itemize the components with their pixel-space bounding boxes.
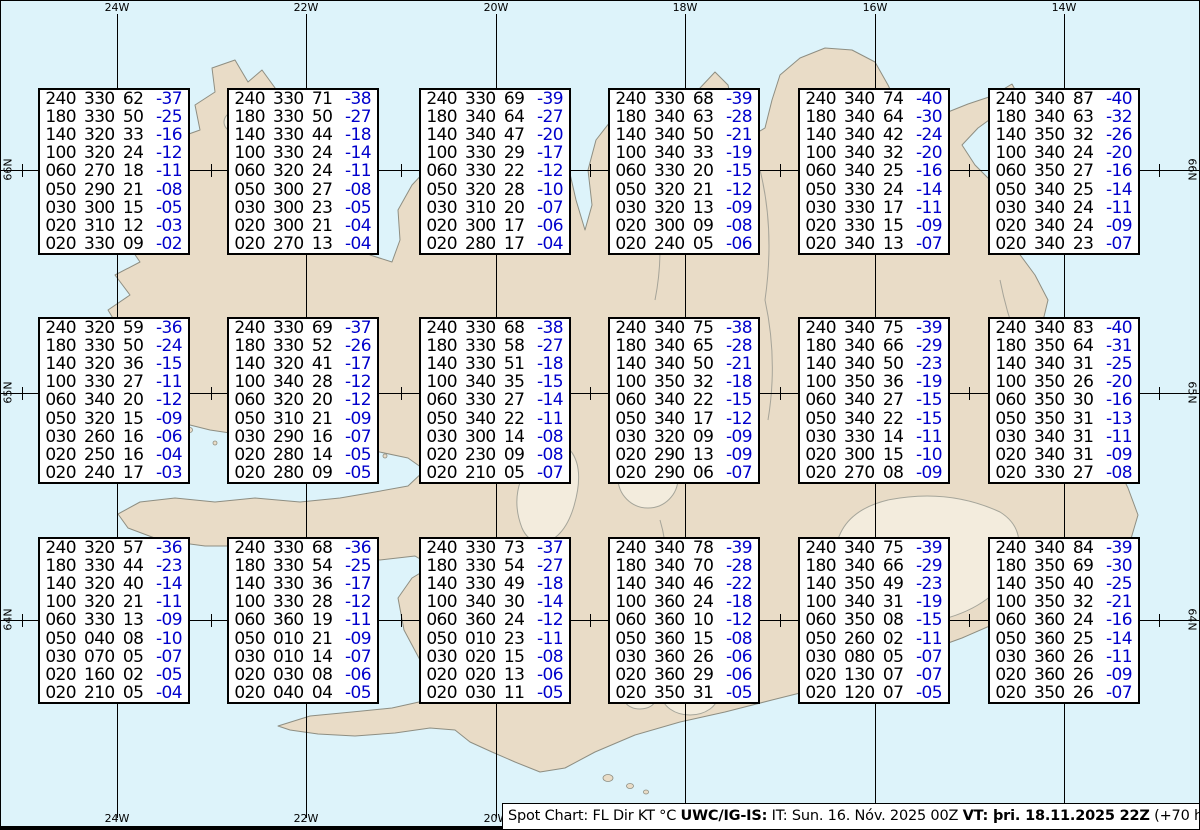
flight-level: 240 <box>426 319 457 337</box>
spot-table-row: 02029006-07 <box>615 464 752 482</box>
wind-direction-deg: 360 <box>653 666 685 684</box>
spot-table-row: 10035032-18 <box>615 373 752 391</box>
spot-table-row: 05030027-08 <box>234 181 371 199</box>
temperature-c: -11 <box>150 162 182 180</box>
spot-table-row: 02029013-09 <box>615 446 752 464</box>
wind-direction-deg: 240 <box>653 235 685 253</box>
wind-speed-kt: 50 <box>691 355 713 373</box>
wind-direction-deg: 300 <box>464 428 496 446</box>
temperature-c: -07 <box>720 464 752 482</box>
temperature-c: -11 <box>339 611 371 629</box>
temperature-c: -19 <box>910 373 942 391</box>
spot-table-row: 02027008-09 <box>805 464 942 482</box>
wind-speed-kt: 02 <box>881 630 903 648</box>
flight-level: 020 <box>995 217 1026 235</box>
wind-speed-kt: 15 <box>121 410 143 428</box>
spot-table-row: 24032059-36 <box>45 319 182 337</box>
flight-level: 030 <box>45 648 76 666</box>
wind-speed-kt: 69 <box>502 90 524 108</box>
wind-speed-kt: 26 <box>691 648 713 666</box>
spot-chart-page: 24W24W22W22W20W20W18W18W16W16W14W14W66N6… <box>0 0 1200 830</box>
wind-direction-deg: 330 <box>272 575 304 593</box>
wind-speed-kt: 05 <box>121 684 143 702</box>
temperature-c: -14 <box>1100 630 1132 648</box>
flight-level: 060 <box>426 391 457 409</box>
spot-table-row: 14034031-25 <box>995 355 1132 373</box>
temperature-c: -11 <box>910 630 942 648</box>
flight-level: 030 <box>995 199 1026 217</box>
wind-direction-deg: 360 <box>1033 630 1065 648</box>
wind-direction-deg: 330 <box>464 391 496 409</box>
wind-direction-deg: 340 <box>653 557 685 575</box>
wind-direction-deg: 030 <box>464 684 496 702</box>
flight-level: 020 <box>45 446 76 464</box>
flight-level: 140 <box>615 355 646 373</box>
wind-direction-deg: 210 <box>83 684 115 702</box>
wind-direction-deg: 340 <box>1033 319 1065 337</box>
wind-direction-deg: 300 <box>272 199 304 217</box>
spot-table-row: 24033068-39 <box>615 90 752 108</box>
spot-table-row: 24034075-39 <box>805 319 942 337</box>
spot-table-row: 02030015-10 <box>805 446 942 464</box>
wind-speed-kt: 64 <box>1071 337 1093 355</box>
temperature-c: -07 <box>1100 235 1132 253</box>
wind-direction-deg: 300 <box>653 217 685 235</box>
temperature-c: -08 <box>720 630 752 648</box>
temperature-c: -08 <box>720 217 752 235</box>
temperature-c: -40 <box>910 90 942 108</box>
wind-speed-kt: 07 <box>881 666 903 684</box>
spot-table-row: 24032057-36 <box>45 539 182 557</box>
wind-speed-kt: 24 <box>1071 199 1093 217</box>
spot-table-row: 24033069-37 <box>234 319 371 337</box>
flight-level: 060 <box>615 391 646 409</box>
wind-speed-kt: 16 <box>121 446 143 464</box>
flight-level: 020 <box>234 666 265 684</box>
flight-level: 020 <box>805 464 836 482</box>
wind-speed-kt: 17 <box>121 464 143 482</box>
wind-speed-kt: 17 <box>691 410 713 428</box>
wind-direction-deg: 340 <box>843 144 875 162</box>
wind-speed-kt: 32 <box>881 144 903 162</box>
wind-speed-kt: 26 <box>1071 648 1093 666</box>
wind-direction-deg: 350 <box>1033 162 1065 180</box>
flight-level: 140 <box>426 575 457 593</box>
wind-speed-kt: 64 <box>502 108 524 126</box>
temperature-c: -24 <box>910 126 942 144</box>
temperature-c: -37 <box>339 319 371 337</box>
flight-level: 100 <box>995 144 1026 162</box>
temperature-c: -16 <box>1100 391 1132 409</box>
wind-direction-deg: 360 <box>653 611 685 629</box>
temperature-c: -04 <box>339 217 371 235</box>
longitude-label-bottom: 24W <box>100 812 134 825</box>
graticule-tick-cross <box>401 164 402 177</box>
flight-level: 100 <box>45 373 76 391</box>
flight-level: 030 <box>45 199 76 217</box>
spot-table-row: 10033029-17 <box>426 144 563 162</box>
wind-direction-deg: 340 <box>843 593 875 611</box>
spot-table-row: 02021005-04 <box>45 684 182 702</box>
wind-direction-deg: 360 <box>653 593 685 611</box>
wind-direction-deg: 350 <box>843 575 875 593</box>
flight-level: 030 <box>805 428 836 446</box>
spot-table-row: 02034031-09 <box>995 446 1132 464</box>
flight-level: 100 <box>426 373 457 391</box>
wind-direction-deg: 300 <box>272 217 304 235</box>
wind-direction-deg: 300 <box>83 199 115 217</box>
flight-level: 140 <box>995 575 1026 593</box>
spot-table: 24034075-3918034066-2914034050-231003503… <box>798 317 950 484</box>
wind-speed-kt: 13 <box>881 235 903 253</box>
wind-direction-deg: 340 <box>1033 108 1065 126</box>
temperature-c: -25 <box>1100 575 1132 593</box>
wind-direction-deg: 340 <box>843 410 875 428</box>
temperature-c: -12 <box>339 593 371 611</box>
flight-level: 020 <box>45 666 76 684</box>
wind-speed-kt: 23 <box>1071 235 1093 253</box>
wind-speed-kt: 21 <box>310 217 332 235</box>
wind-direction-deg: 350 <box>1033 593 1065 611</box>
wind-speed-kt: 52 <box>310 337 332 355</box>
temperature-c: -12 <box>339 373 371 391</box>
graticule-tick-cross <box>590 614 591 627</box>
graticule-tick-cross <box>780 387 781 400</box>
wind-direction-deg: 320 <box>653 199 685 217</box>
status-title: Spot Chart: FL Dir KT °C <box>508 808 681 824</box>
spot-table-row: 24034075-38 <box>615 319 752 337</box>
wind-speed-kt: 14 <box>502 428 524 446</box>
temperature-c: -09 <box>1100 217 1132 235</box>
wind-direction-deg: 160 <box>83 666 115 684</box>
temperature-c: -37 <box>531 539 563 557</box>
flight-level: 180 <box>234 337 265 355</box>
temperature-c: -17 <box>531 144 563 162</box>
wind-direction-deg: 340 <box>1033 217 1065 235</box>
wind-direction-deg: 340 <box>653 126 685 144</box>
flight-level: 030 <box>234 648 265 666</box>
wind-speed-kt: 32 <box>1071 126 1093 144</box>
flight-level: 240 <box>426 90 457 108</box>
flight-level: 240 <box>995 319 1026 337</box>
flight-level: 100 <box>615 144 646 162</box>
wind-direction-deg: 330 <box>464 319 496 337</box>
temperature-c: -06 <box>150 428 182 446</box>
spot-table-row: 02025016-04 <box>45 446 182 464</box>
spot-table-row: 03002015-08 <box>426 648 563 666</box>
longitude-label-bottom: 22W <box>289 812 323 825</box>
flight-level: 020 <box>426 446 457 464</box>
spot-table: 24033071-3818033050-2714033044-181003302… <box>227 88 379 255</box>
flight-level: 020 <box>45 235 76 253</box>
graticule-tick-cross <box>780 614 781 627</box>
temperature-c: -38 <box>339 90 371 108</box>
wind-direction-deg: 340 <box>464 373 496 391</box>
flight-level: 100 <box>615 373 646 391</box>
wind-direction-deg: 330 <box>83 337 115 355</box>
temperature-c: -09 <box>339 630 371 648</box>
spot-table-row: 10032021-11 <box>45 593 182 611</box>
temperature-c: -38 <box>720 319 752 337</box>
wind-direction-deg: 330 <box>464 355 496 373</box>
spot-table: 24034084-3918035069-3014035040-251003503… <box>988 537 1140 704</box>
wind-speed-kt: 25 <box>881 162 903 180</box>
spot-table-row: 10032024-12 <box>45 144 182 162</box>
wind-direction-deg: 340 <box>653 391 685 409</box>
temperature-c: -05 <box>339 446 371 464</box>
spot-table-row: 18033050-25 <box>45 108 182 126</box>
graticule-tick-cross <box>590 164 591 177</box>
spot-table-row: 02021005-07 <box>426 464 563 482</box>
wind-speed-kt: 24 <box>1071 611 1093 629</box>
flight-level: 050 <box>615 410 646 428</box>
temperature-c: -12 <box>531 611 563 629</box>
wind-direction-deg: 340 <box>272 373 304 391</box>
wind-speed-kt: 15 <box>881 217 903 235</box>
spot-table-row: 14035040-25 <box>995 575 1132 593</box>
graticule-tick-cross <box>969 164 970 177</box>
wind-direction-deg: 320 <box>83 319 115 337</box>
flight-level: 020 <box>805 666 836 684</box>
temperature-c: -07 <box>339 648 371 666</box>
wind-direction-deg: 010 <box>272 648 304 666</box>
temperature-c: -27 <box>531 337 563 355</box>
temperature-c: -07 <box>531 199 563 217</box>
wind-speed-kt: 21 <box>310 410 332 428</box>
spot-table-row: 10034035-15 <box>426 373 563 391</box>
wind-speed-kt: 24 <box>502 611 524 629</box>
spot-table-row: 18033050-24 <box>45 337 182 355</box>
wind-direction-deg: 340 <box>653 108 685 126</box>
flight-level: 050 <box>234 181 265 199</box>
flight-level: 060 <box>45 611 76 629</box>
spot-table-row: 14034047-20 <box>426 126 563 144</box>
temperature-c: -30 <box>910 108 942 126</box>
wind-direction-deg: 330 <box>272 126 304 144</box>
status-valid-time: VT: þri. 18.11.2025 22Z <box>963 808 1150 824</box>
flight-level: 180 <box>426 557 457 575</box>
temperature-c: -12 <box>150 144 182 162</box>
flight-level: 240 <box>805 90 836 108</box>
temperature-c: -15 <box>720 391 752 409</box>
spot-table-row: 05031021-09 <box>234 410 371 428</box>
temperature-c: -20 <box>1100 144 1132 162</box>
wind-direction-deg: 330 <box>464 144 496 162</box>
flight-level: 140 <box>234 575 265 593</box>
wind-direction-deg: 330 <box>464 337 496 355</box>
wind-speed-kt: 25 <box>1071 181 1093 199</box>
wind-speed-kt: 66 <box>881 557 903 575</box>
temperature-c: -14 <box>1100 181 1132 199</box>
temperature-c: -08 <box>150 181 182 199</box>
spot-table: 24034075-3918034066-2914035049-231003403… <box>798 537 950 704</box>
flight-level: 030 <box>234 199 265 217</box>
spot-table-row: 10033027-11 <box>45 373 182 391</box>
wind-direction-deg: 280 <box>464 235 496 253</box>
spot-table-row: 06033022-12 <box>426 162 563 180</box>
spot-table-row: 06036010-12 <box>615 611 752 629</box>
wind-speed-kt: 27 <box>1071 464 1093 482</box>
wind-direction-deg: 340 <box>653 355 685 373</box>
spot-table-row: 24033068-36 <box>234 539 371 557</box>
wind-direction-deg: 280 <box>272 464 304 482</box>
flight-level: 240 <box>45 539 76 557</box>
flight-level: 030 <box>426 199 457 217</box>
wind-direction-deg: 360 <box>1033 611 1065 629</box>
wind-direction-deg: 300 <box>843 446 875 464</box>
wind-speed-kt: 31 <box>1071 446 1093 464</box>
flight-level: 060 <box>426 611 457 629</box>
flight-level: 100 <box>234 144 265 162</box>
graticule-tick-cross <box>1159 164 1160 177</box>
spot-table-row: 03033014-11 <box>805 428 942 446</box>
wind-speed-kt: 09 <box>310 464 332 482</box>
wind-direction-deg: 300 <box>272 181 304 199</box>
flight-level: 020 <box>234 217 265 235</box>
wind-speed-kt: 04 <box>310 684 332 702</box>
temperature-c: -18 <box>720 593 752 611</box>
wind-speed-kt: 54 <box>310 557 332 575</box>
temperature-c: -07 <box>1100 684 1132 702</box>
wind-speed-kt: 13 <box>310 235 332 253</box>
spot-table-row: 14032033-16 <box>45 126 182 144</box>
spot-table-row: 02002013-06 <box>426 666 563 684</box>
wind-speed-kt: 50 <box>691 126 713 144</box>
temperature-c: -24 <box>150 337 182 355</box>
status-issue-time: IT: Sun. 16. Nóv. 2025 00Z <box>767 808 962 824</box>
flight-level: 140 <box>45 355 76 373</box>
wind-direction-deg: 260 <box>843 630 875 648</box>
temperature-c: -28 <box>720 337 752 355</box>
temperature-c: -05 <box>150 666 182 684</box>
wind-speed-kt: 74 <box>881 90 903 108</box>
wind-speed-kt: 27 <box>1071 162 1093 180</box>
wind-speed-kt: 09 <box>691 428 713 446</box>
wind-speed-kt: 50 <box>121 337 143 355</box>
wind-direction-deg: 290 <box>83 181 115 199</box>
spot-table-row: 02030009-08 <box>615 217 752 235</box>
temperature-c: -23 <box>150 557 182 575</box>
wind-speed-kt: 31 <box>881 593 903 611</box>
temperature-c: -09 <box>150 410 182 428</box>
temperature-c: -13 <box>1100 410 1132 428</box>
flight-level: 020 <box>426 464 457 482</box>
wind-direction-deg: 340 <box>843 235 875 253</box>
temperature-c: -39 <box>910 319 942 337</box>
graticule-tick-cross <box>211 164 212 177</box>
temperature-c: -14 <box>531 391 563 409</box>
wind-speed-kt: 02 <box>121 666 143 684</box>
temperature-c: -07 <box>910 235 942 253</box>
flight-level: 060 <box>805 162 836 180</box>
flight-level: 020 <box>234 464 265 482</box>
spot-table-row: 18034064-30 <box>805 108 942 126</box>
temperature-c: -07 <box>910 648 942 666</box>
wind-speed-kt: 42 <box>881 126 903 144</box>
wind-direction-deg: 340 <box>843 337 875 355</box>
spot-table-row: 06034022-15 <box>615 391 752 409</box>
wind-direction-deg: 340 <box>1033 539 1065 557</box>
wind-direction-deg: 130 <box>843 666 875 684</box>
spot-table: 24032057-3618033044-2314032040-141003202… <box>38 537 190 704</box>
wind-direction-deg: 340 <box>1033 355 1065 373</box>
wind-speed-kt: 33 <box>691 144 713 162</box>
flight-level: 180 <box>45 108 76 126</box>
wind-speed-kt: 64 <box>881 108 903 126</box>
spot-table-row: 24034075-39 <box>805 539 942 557</box>
temperature-c: -11 <box>531 630 563 648</box>
spot-table-row: 24033062-37 <box>45 90 182 108</box>
spot-table-row: 05032028-10 <box>426 181 563 199</box>
spot-table-row: 03008005-07 <box>805 648 942 666</box>
flight-level: 020 <box>615 666 646 684</box>
wind-speed-kt: 29 <box>691 666 713 684</box>
spot-table-row: 10034028-12 <box>234 373 371 391</box>
wind-speed-kt: 50 <box>310 108 332 126</box>
temperature-c: -12 <box>720 611 752 629</box>
wind-direction-deg: 340 <box>653 319 685 337</box>
flight-level: 030 <box>615 199 646 217</box>
spot-table-row: 18034065-28 <box>615 337 752 355</box>
flight-level: 060 <box>234 611 265 629</box>
wind-speed-kt: 50 <box>121 108 143 126</box>
spot-table-row: 14034046-22 <box>615 575 752 593</box>
wind-direction-deg: 230 <box>464 446 496 464</box>
wind-speed-kt: 27 <box>502 391 524 409</box>
spot-table-row: 06033020-15 <box>615 162 752 180</box>
wind-speed-kt: 31 <box>1071 428 1093 446</box>
flight-level: 020 <box>234 446 265 464</box>
temperature-c: -17 <box>339 355 371 373</box>
wind-speed-kt: 22 <box>502 162 524 180</box>
temperature-c: -07 <box>531 464 563 482</box>
flight-level: 060 <box>805 391 836 409</box>
wind-speed-kt: 49 <box>881 575 903 593</box>
wind-speed-kt: 15 <box>502 648 524 666</box>
wind-speed-kt: 71 <box>310 90 332 108</box>
temperature-c: -21 <box>720 126 752 144</box>
flight-level: 020 <box>45 217 76 235</box>
wind-speed-kt: 16 <box>121 428 143 446</box>
wind-direction-deg: 330 <box>272 337 304 355</box>
flight-level: 140 <box>45 126 76 144</box>
temperature-c: -10 <box>910 446 942 464</box>
temperature-c: -04 <box>150 446 182 464</box>
spot-table-row: 06033013-09 <box>45 611 182 629</box>
flight-level: 060 <box>615 162 646 180</box>
wind-speed-kt: 32 <box>1071 593 1093 611</box>
spot-table-row: 18033052-26 <box>234 337 371 355</box>
spot-table-row: 18033050-27 <box>234 108 371 126</box>
temperature-c: -39 <box>531 90 563 108</box>
temperature-c: -25 <box>339 557 371 575</box>
temperature-c: -15 <box>910 611 942 629</box>
spot-table-row: 24034074-40 <box>805 90 942 108</box>
wind-direction-deg: 340 <box>653 410 685 428</box>
flight-level: 180 <box>234 557 265 575</box>
temperature-c: -22 <box>720 575 752 593</box>
wind-speed-kt: 15 <box>691 630 713 648</box>
wind-speed-kt: 24 <box>1071 144 1093 162</box>
spot-table-row: 03036026-06 <box>615 648 752 666</box>
flight-level: 050 <box>234 630 265 648</box>
spot-table-row: 06027018-11 <box>45 162 182 180</box>
temperature-c: -21 <box>1100 593 1132 611</box>
wind-speed-kt: 63 <box>691 108 713 126</box>
wind-direction-deg: 350 <box>1033 684 1065 702</box>
flight-level: 140 <box>45 575 76 593</box>
wind-speed-kt: 40 <box>121 575 143 593</box>
